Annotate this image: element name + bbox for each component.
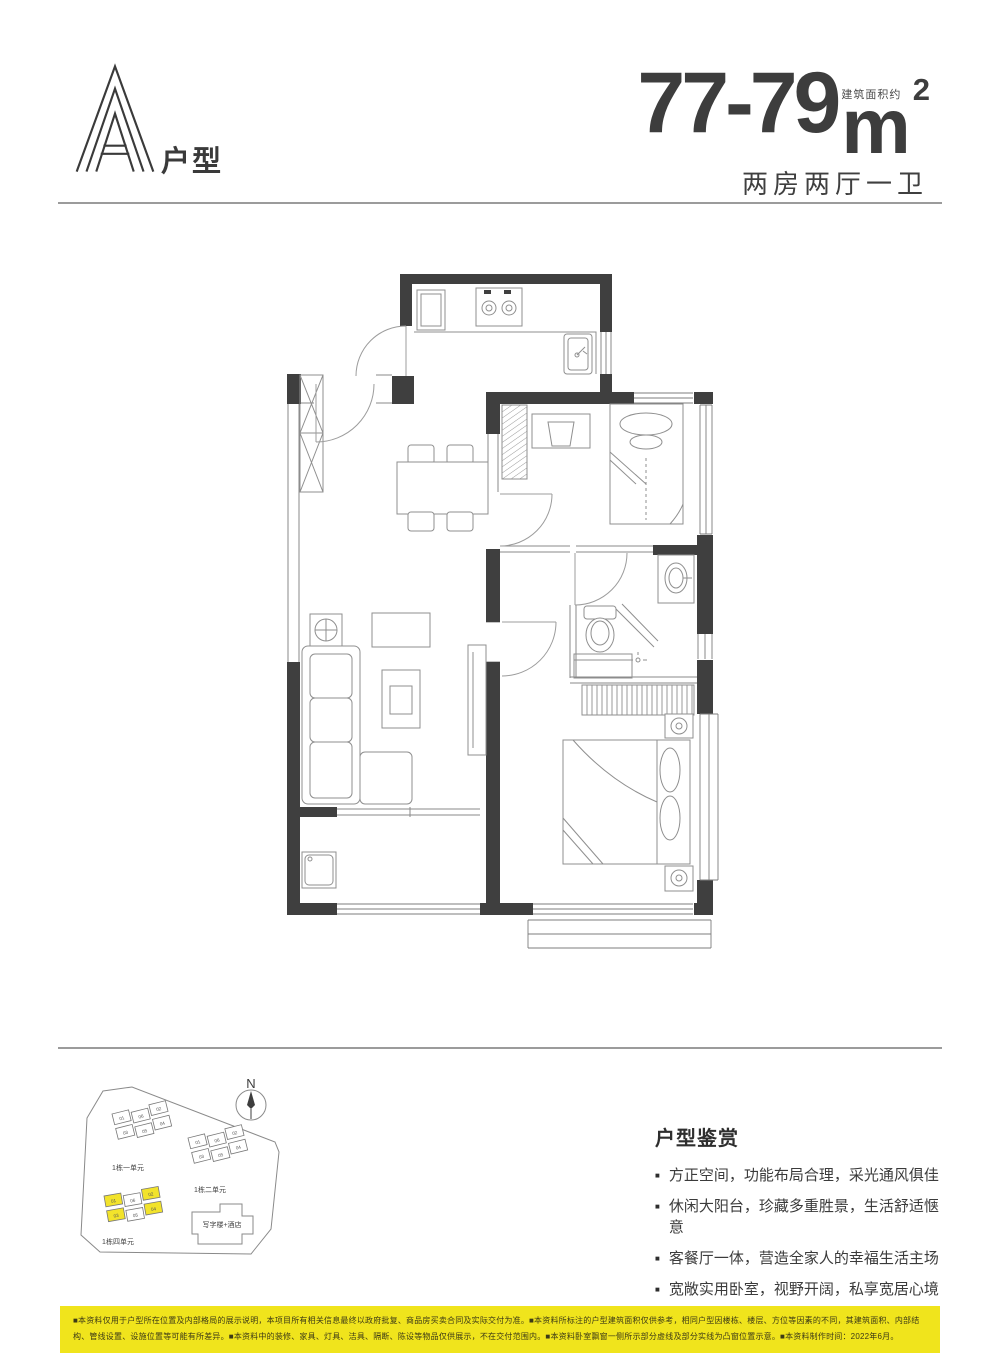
- balcony-slider: [337, 807, 480, 817]
- review-item: ■休闲大阳台，珍藏多重胜景，生活舒适惬意: [655, 1196, 945, 1238]
- master-bedroom: [563, 685, 694, 891]
- review-item: ■方正空间，功能布局合理，采光通风俱佳: [655, 1165, 945, 1186]
- dining-chair: [408, 445, 434, 464]
- square-bullet-icon: ■: [655, 1253, 660, 1264]
- cluster-2: 01 06 02 03 05 04: [188, 1125, 248, 1166]
- square-bullet-icon: ■: [655, 1170, 660, 1181]
- area-range: 77-79: [637, 64, 837, 143]
- north-needle: [247, 1091, 255, 1109]
- kitchen-sink: [564, 334, 592, 374]
- dining-chair: [408, 512, 434, 531]
- review-title: 户型鉴赏: [655, 1122, 945, 1151]
- pillow: [620, 413, 672, 435]
- bay-window-east: [700, 714, 718, 880]
- layout-description: 两房两厅一卫: [637, 164, 930, 201]
- office-building-label: 写字楼+酒店: [202, 1220, 241, 1229]
- bed-2: [610, 404, 683, 524]
- shower: [616, 604, 658, 662]
- living-room: [302, 613, 486, 888]
- pillow: [660, 748, 680, 792]
- area-unit: m: [841, 102, 910, 150]
- area-block: 77-79 建筑面积约 m 2 两房两厅一卫: [637, 64, 930, 201]
- cluster-1-label: 1栋一单元: [112, 1163, 144, 1172]
- stool: [548, 422, 574, 446]
- bay-window-south: [528, 920, 711, 948]
- kitchen: [414, 288, 596, 374]
- site-boundary: [81, 1087, 279, 1254]
- stove: [476, 288, 522, 326]
- floorplan-page: 户型 77-79 建筑面积约 m 2 两房两厅一卫: [0, 0, 1000, 1357]
- floor-plan: [280, 262, 720, 962]
- footer-divider: [58, 1047, 942, 1049]
- wash-basin: [658, 555, 694, 603]
- disclaimer-text: ■本资料仅用于户型所在位置及内部格局的展示说明，本项目所有相关信息最终以政府批复…: [60, 1306, 940, 1351]
- cluster-2-label: 1栋二单元: [194, 1185, 226, 1194]
- wardrobe-master: [582, 685, 694, 715]
- square-bullet-icon: ■: [655, 1284, 660, 1295]
- dining-table: [397, 462, 488, 514]
- review-item: ■宽敞实用卧室，视野开阔，私享宽居心境: [655, 1279, 945, 1300]
- coffee-table: [382, 670, 420, 728]
- unit-letter-a-logo: [74, 56, 156, 182]
- master-door: [502, 622, 556, 676]
- cluster-4-label: 1栋四单元: [102, 1237, 134, 1246]
- area-superscript: 2: [913, 72, 930, 108]
- north-label: N: [246, 1076, 255, 1091]
- square-bullet-icon: ■: [655, 1201, 660, 1212]
- pillow: [630, 435, 662, 449]
- ac-unit: [310, 614, 342, 646]
- bathroom-door: [575, 553, 627, 605]
- bedroom2-door: [500, 494, 552, 546]
- unit-type-label: 户型: [161, 138, 223, 180]
- dining-chair: [447, 445, 473, 464]
- bathroom: [574, 555, 694, 678]
- review-section: 户型鉴赏 ■方正空间，功能布局合理，采光通风俱佳 ■休闲大阳台，珍藏多重胜景，生…: [655, 1122, 945, 1310]
- bed-master: [563, 740, 690, 864]
- compass: N: [236, 1076, 266, 1120]
- bedroom-2: [502, 404, 683, 524]
- cluster-1: 01 06 02 03 05 04: [112, 1101, 172, 1142]
- header-divider: [58, 202, 942, 204]
- vanity-counter: [574, 654, 632, 678]
- kitchen-door: [356, 326, 406, 376]
- toilet: [584, 606, 616, 652]
- review-list: ■方正空间，功能布局合理，采光通风俱佳 ■休闲大阳台，珍藏多重胜景，生活舒适惬意…: [655, 1165, 945, 1300]
- pillow: [660, 796, 680, 840]
- dining-chair: [447, 512, 473, 531]
- review-item: ■客餐厅一体，营造全家人的幸福生活主场: [655, 1248, 945, 1269]
- console-table: [372, 613, 430, 647]
- tv-cabinet: [468, 645, 486, 755]
- wardrobe-2: [502, 405, 527, 479]
- disclaimer-bar: ■本资料仅用于户型所在位置及内部格局的展示说明，本项目所有相关信息最终以政府批复…: [60, 1306, 940, 1353]
- washing-machine: [302, 852, 336, 888]
- cluster-4: 01 06 02 03 05 04: [104, 1186, 163, 1224]
- site-plan: N 01 06 02 03 05 04 1栋一单元 01 06 02 03 05…: [70, 1076, 320, 1274]
- dining-area: [397, 445, 488, 531]
